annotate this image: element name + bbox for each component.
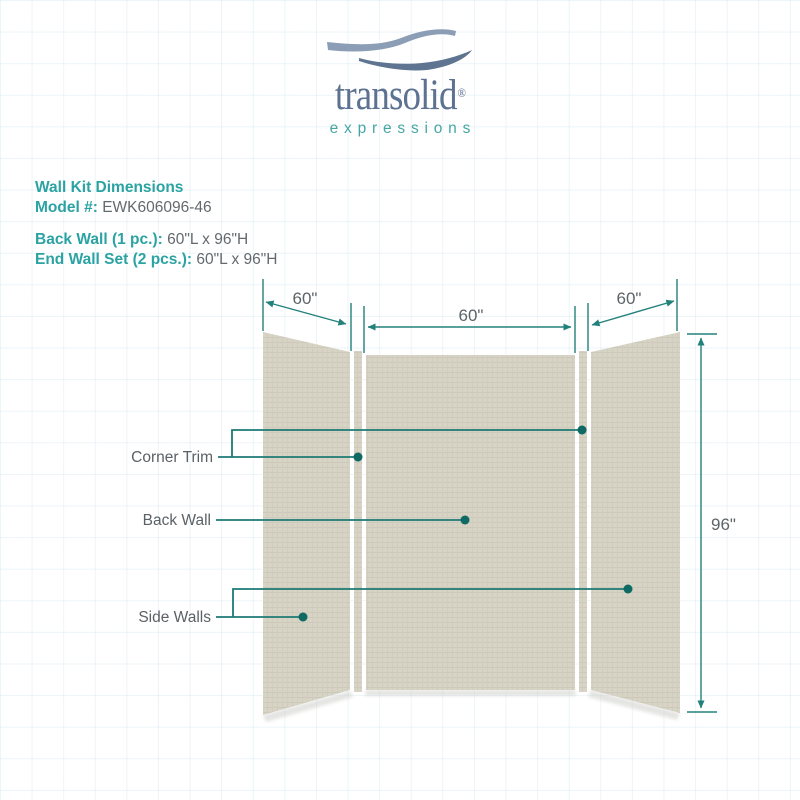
dot-side-wall-left (299, 613, 308, 622)
dim-label-right: 60" (617, 289, 642, 308)
wall-panels (263, 332, 680, 715)
label-back-wall: Back Wall (143, 512, 211, 529)
dim-label-height: 96" (711, 515, 736, 534)
corner-trim-right (579, 351, 587, 692)
label-corner-trim: Corner Trim (131, 449, 213, 466)
back-wall-panel (366, 355, 575, 690)
dot-corner-trim-right (578, 426, 587, 435)
wall-kit-diagram: 60" 60" 60" 96" Corner Trim Back Wall Si… (0, 0, 800, 800)
label-side-walls: Side Walls (138, 609, 211, 626)
left-side-wall-panel (263, 332, 350, 715)
dot-side-wall-right (624, 585, 633, 594)
right-side-wall-panel (591, 332, 680, 713)
dim-label-left: 60" (293, 289, 318, 308)
shadow-center (365, 690, 576, 696)
page: transolid® expressions Wall Kit Dimensio… (0, 0, 800, 800)
dot-corner-trim-left (354, 453, 363, 462)
corner-trim-left (354, 351, 362, 692)
dim-label-center: 60" (459, 306, 484, 325)
dot-back-wall (461, 516, 470, 525)
callout-labels: Corner Trim Back Wall Side Walls (131, 449, 213, 626)
